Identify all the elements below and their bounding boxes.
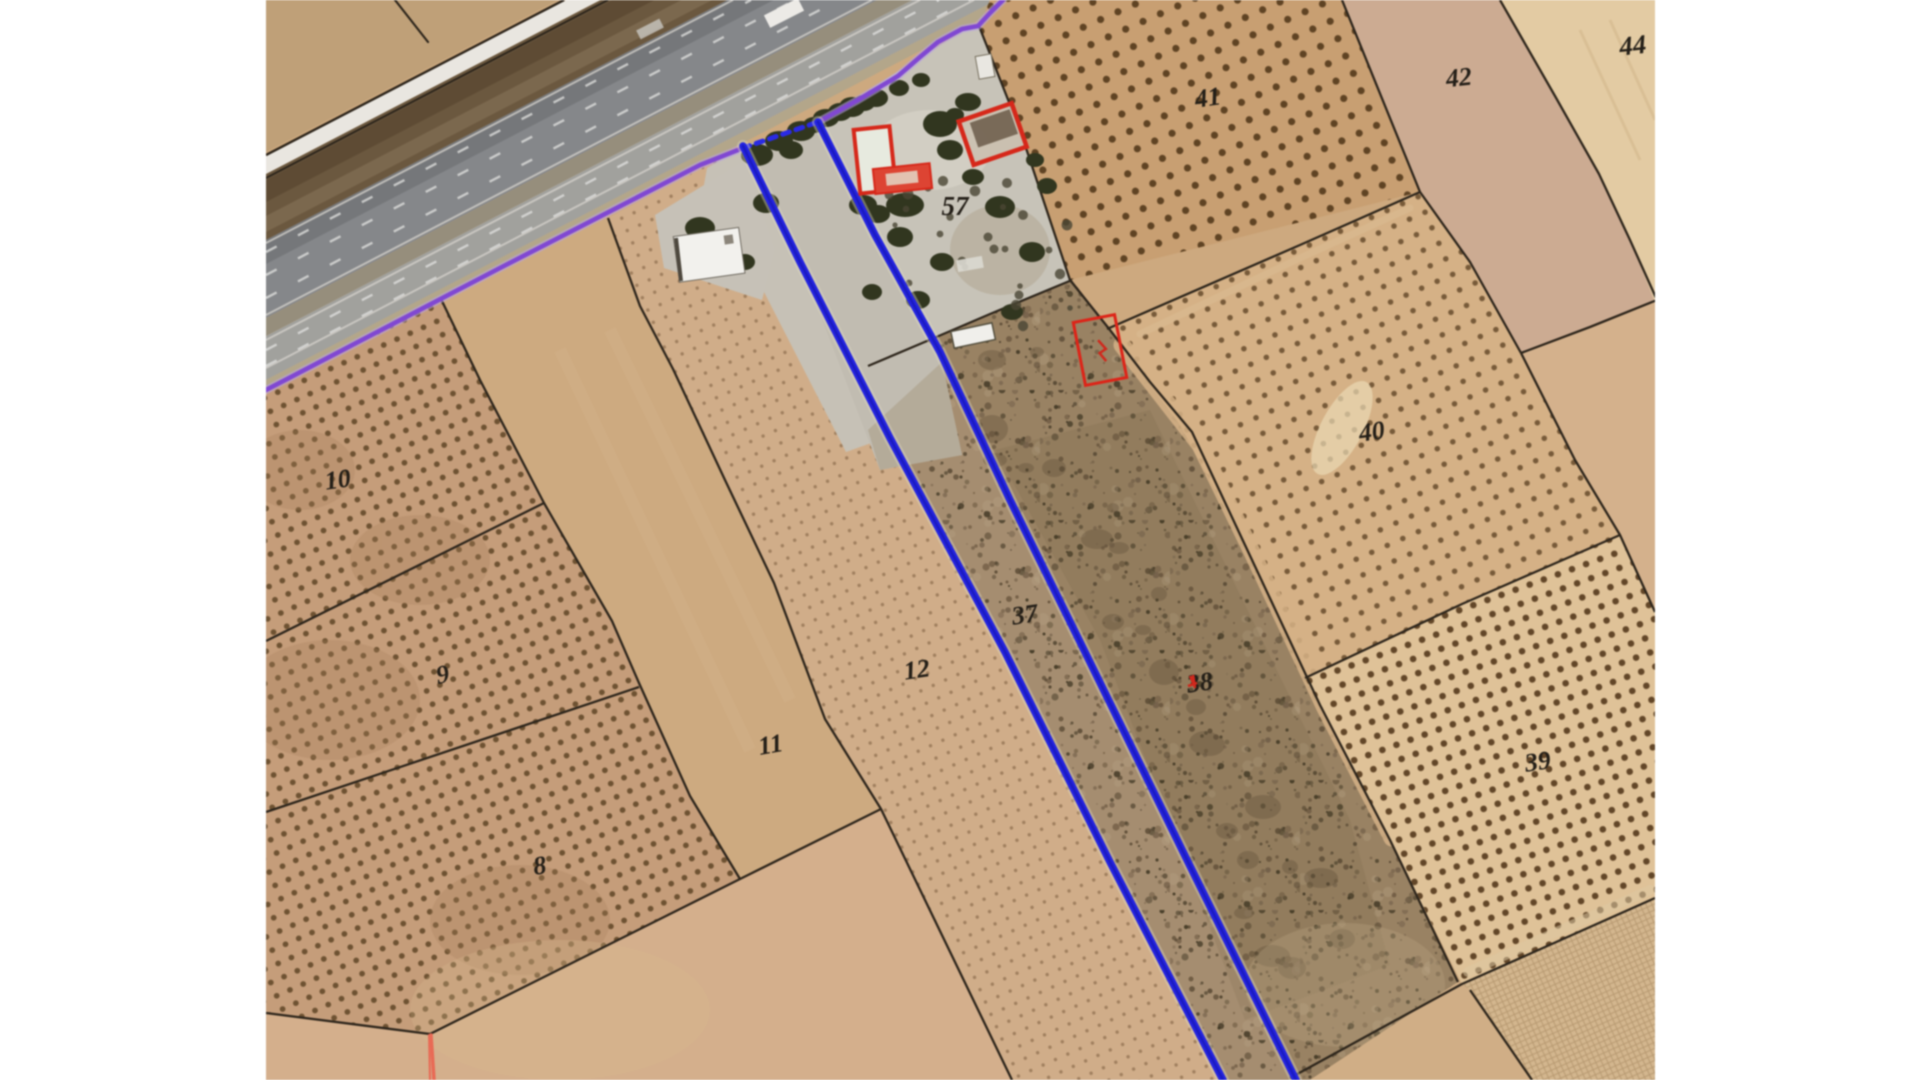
- svg-text:10: 10: [323, 463, 353, 495]
- svg-text:12: 12: [902, 653, 932, 685]
- svg-text:57: 57: [942, 191, 971, 221]
- svg-text:38: 38: [1184, 666, 1215, 698]
- svg-text:42: 42: [1443, 62, 1473, 94]
- svg-text:37: 37: [1009, 598, 1041, 631]
- svg-text:44: 44: [1617, 29, 1648, 62]
- svg-text:11: 11: [756, 728, 785, 761]
- svg-text:41: 41: [1192, 81, 1223, 113]
- svg-text:40: 40: [1356, 415, 1387, 447]
- svg-text:39: 39: [1522, 745, 1553, 777]
